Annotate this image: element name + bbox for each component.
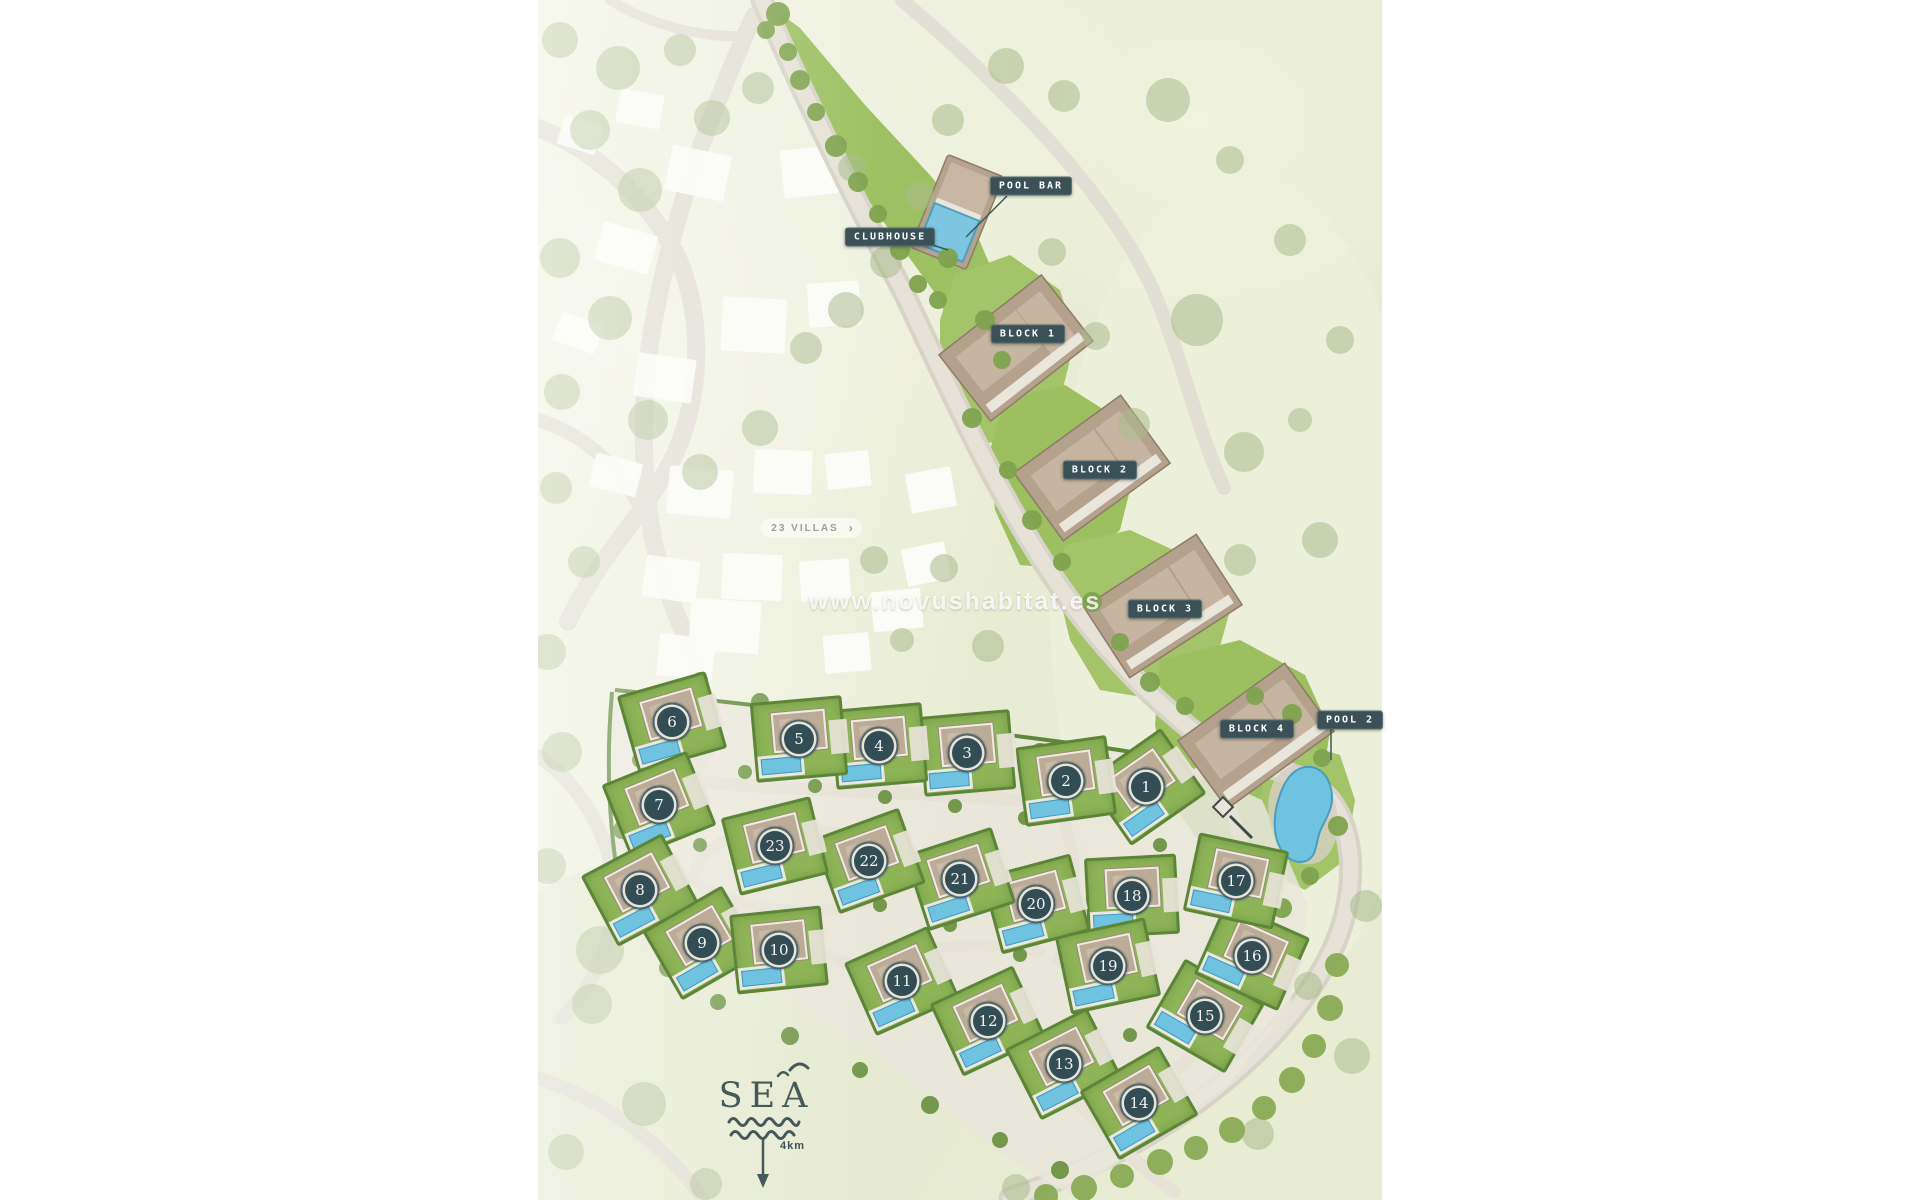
villa-number-marker: 7	[644, 790, 674, 820]
villa-driveway	[996, 733, 1017, 768]
villa-number-marker: 4	[864, 731, 894, 761]
page-canvas: 1234567891011121314151617181920212223 ww…	[0, 0, 1920, 1200]
villa-driveway	[908, 726, 929, 761]
sea-direction-arrow-icon	[748, 1136, 778, 1192]
villa-driveway	[1162, 877, 1182, 912]
villa-number-marker: 3	[952, 738, 982, 768]
villa-number-marker: 16	[1237, 941, 1267, 971]
sea-distance: 4km	[780, 1140, 805, 1152]
villa-number-marker: 1	[1131, 772, 1161, 802]
chevron-right-icon: ›	[849, 521, 853, 535]
villa-number-marker: 20	[1021, 889, 1051, 919]
villa-number-marker: 13	[1049, 1049, 1079, 1079]
villa-number-marker: 5	[784, 724, 814, 754]
watermark: www.novushabitat.es	[809, 588, 1102, 617]
sea-marker: SEA 4km	[690, 1048, 840, 1198]
villa-plot-7: 7	[613, 765, 705, 845]
villa-driveway	[828, 719, 849, 754]
villa-number-marker: 8	[625, 875, 655, 905]
villa-plot-2: 2	[1020, 741, 1112, 821]
villa-plot-10: 10	[733, 910, 825, 990]
ghost-villas-pill: 23 VILLAS ›	[761, 518, 862, 538]
villa-number-marker: 15	[1190, 1001, 1220, 1031]
villa-plot-16: 16	[1206, 916, 1298, 996]
villa-plot-14: 14	[1093, 1063, 1185, 1143]
villa-number-marker: 11	[887, 966, 917, 996]
ghost-villas-pill-text: 23 VILLAS	[771, 523, 838, 534]
villa-number-marker: 18	[1117, 881, 1147, 911]
villa-number-marker: 17	[1221, 866, 1251, 896]
villa-plot-5: 5	[753, 699, 845, 779]
villa-number-marker: 21	[945, 864, 975, 894]
villa-number-marker: 22	[854, 846, 884, 876]
villa-number-marker: 6	[657, 707, 687, 737]
villa-number-marker: 14	[1124, 1088, 1154, 1118]
villa-number-marker: 2	[1051, 766, 1081, 796]
villa-plot-23: 23	[729, 806, 821, 886]
villa-plot-22: 22	[823, 821, 915, 901]
villa-plot-17: 17	[1190, 841, 1282, 921]
villa-plot-6: 6	[626, 682, 718, 762]
villa-driveway	[808, 929, 829, 965]
villa-plot-21: 21	[914, 839, 1006, 919]
villa-plot-3: 3	[921, 713, 1013, 793]
villa-number-marker: 19	[1093, 951, 1123, 981]
villa-number-marker: 10	[764, 935, 794, 965]
sea-label: SEA	[712, 1076, 815, 1116]
villa-number-marker: 23	[760, 831, 790, 861]
villa-number-marker: 12	[973, 1006, 1003, 1036]
villa-number-marker: 9	[687, 928, 717, 958]
